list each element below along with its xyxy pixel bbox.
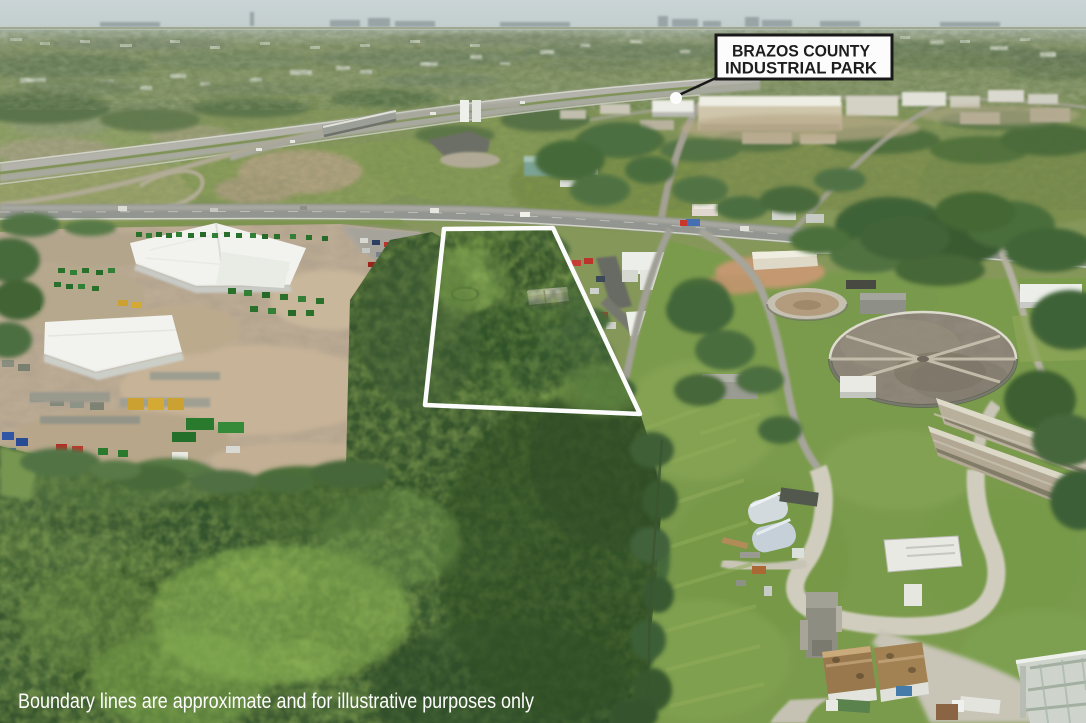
svg-text:INDUSTRIAL PARK: INDUSTRIAL PARK [725,60,877,78]
svg-text:BRAZOS COUNTY: BRAZOS COUNTY [732,43,870,61]
svg-text:Boundary lines are approximate: Boundary lines are approximate and for i… [18,689,534,713]
